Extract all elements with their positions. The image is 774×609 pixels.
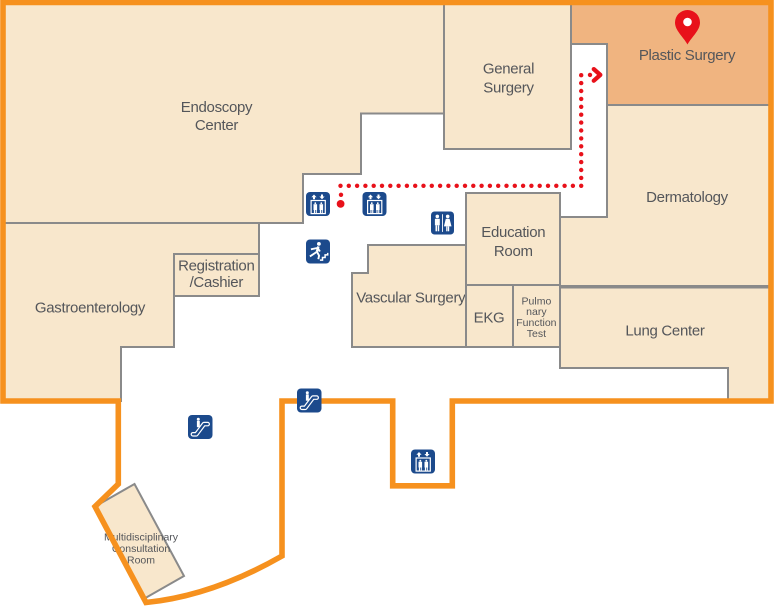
svg-text:General: General (483, 61, 534, 78)
svg-text:Endoscopy: Endoscopy (181, 99, 253, 116)
svg-text:Lung Center: Lung Center (625, 322, 705, 339)
svg-text:Dermatology: Dermatology (646, 189, 729, 206)
svg-text:Gastroenterology: Gastroenterology (35, 299, 146, 316)
svg-text:Center: Center (195, 117, 239, 134)
svg-text:Registration: Registration (178, 257, 254, 274)
svg-text:Surgery: Surgery (483, 80, 534, 97)
svg-text:/Cashier: /Cashier (190, 274, 244, 291)
svg-text:Room: Room (127, 555, 155, 567)
svg-text:Plastic Surgery: Plastic Surgery (639, 47, 736, 64)
svg-text:Room: Room (494, 243, 533, 260)
svg-text:Education: Education (481, 224, 545, 241)
svg-text:Test: Test (527, 328, 546, 340)
svg-text:Vascular Surgery: Vascular Surgery (356, 290, 466, 307)
svg-text:EKG: EKG (474, 310, 505, 327)
